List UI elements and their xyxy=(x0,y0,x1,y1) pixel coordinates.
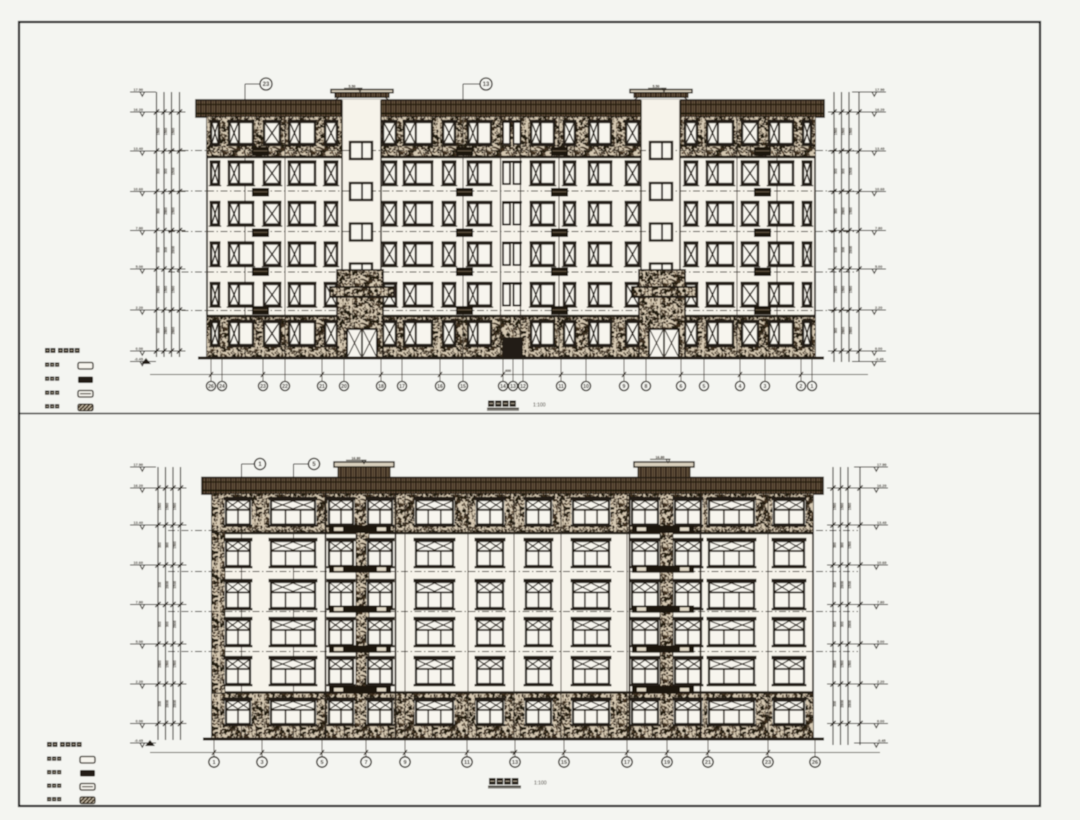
svg-text:300: 300 xyxy=(834,168,838,174)
svg-text:10: 10 xyxy=(583,384,589,390)
svg-text:1500: 1500 xyxy=(173,660,177,668)
svg-text:1500: 1500 xyxy=(849,286,853,294)
svg-text:0.00: 0.00 xyxy=(136,719,143,723)
svg-text:0.00: 0.00 xyxy=(136,347,143,351)
svg-text:-0.45: -0.45 xyxy=(134,739,143,743)
svg-text:300: 300 xyxy=(834,328,838,334)
svg-text:1500: 1500 xyxy=(848,503,852,511)
svg-text:12: 12 xyxy=(520,384,526,390)
svg-text:11: 11 xyxy=(558,384,564,390)
svg-text:300: 300 xyxy=(164,247,168,253)
svg-text:-0.45: -0.45 xyxy=(875,357,884,361)
svg-text:20: 20 xyxy=(341,384,347,390)
svg-text:1500: 1500 xyxy=(834,128,838,136)
svg-text:17.90: 17.90 xyxy=(875,88,885,92)
svg-text:22: 22 xyxy=(282,384,288,390)
svg-text:2800: 2800 xyxy=(841,581,845,589)
svg-text:300: 300 xyxy=(834,208,838,214)
svg-text:0.00: 0.00 xyxy=(877,719,884,723)
svg-text:400: 400 xyxy=(510,751,516,755)
svg-text:300: 300 xyxy=(158,701,162,707)
svg-text:2800: 2800 xyxy=(164,327,168,335)
svg-text:8: 8 xyxy=(645,384,648,390)
svg-text:300: 300 xyxy=(157,208,161,214)
svg-text:300: 300 xyxy=(833,582,837,588)
svg-text:6: 6 xyxy=(680,384,683,390)
svg-text:400: 400 xyxy=(505,369,511,373)
svg-text:2800: 2800 xyxy=(848,700,852,708)
svg-text:1500: 1500 xyxy=(172,167,176,175)
svg-text:17.90: 17.90 xyxy=(133,88,143,92)
svg-text:5.00: 5.00 xyxy=(875,265,882,269)
svg-text:15: 15 xyxy=(561,760,567,766)
svg-text:26: 26 xyxy=(812,760,818,766)
svg-text:2800: 2800 xyxy=(157,286,161,294)
svg-text:2800: 2800 xyxy=(173,620,177,628)
svg-text:7.80: 7.80 xyxy=(136,226,143,230)
svg-text:300: 300 xyxy=(841,542,845,548)
svg-text:1500: 1500 xyxy=(172,207,176,215)
svg-text:900: 900 xyxy=(157,247,161,253)
svg-text:1500: 1500 xyxy=(849,167,853,175)
svg-text:13.40: 13.40 xyxy=(877,521,887,525)
svg-text:26: 26 xyxy=(208,384,214,390)
svg-text:1500: 1500 xyxy=(173,581,177,589)
svg-text:2: 2 xyxy=(800,384,803,390)
svg-text:1500: 1500 xyxy=(164,128,168,136)
svg-text:10.60: 10.60 xyxy=(133,187,143,191)
svg-text:5.00: 5.00 xyxy=(877,640,884,644)
svg-text:7.80: 7.80 xyxy=(877,600,884,604)
svg-text:10.60: 10.60 xyxy=(875,187,885,191)
svg-text:1500: 1500 xyxy=(164,286,168,294)
svg-text:17: 17 xyxy=(624,760,630,766)
svg-text:7.80: 7.80 xyxy=(875,226,882,230)
svg-text:16.20: 16.20 xyxy=(133,484,143,488)
svg-text:1500: 1500 xyxy=(158,503,162,511)
svg-text:9: 9 xyxy=(403,760,406,766)
svg-text:2.20: 2.20 xyxy=(875,306,882,310)
svg-text:13: 13 xyxy=(483,82,490,88)
svg-text:2800: 2800 xyxy=(833,660,837,668)
svg-text:300: 300 xyxy=(842,168,846,174)
svg-text:300: 300 xyxy=(833,542,837,548)
svg-text:5: 5 xyxy=(703,384,706,390)
svg-text:1500: 1500 xyxy=(848,541,852,549)
svg-text:5: 5 xyxy=(320,760,323,766)
svg-text:300: 300 xyxy=(833,701,837,707)
svg-text:2800: 2800 xyxy=(158,660,162,668)
svg-text:10.60: 10.60 xyxy=(877,561,887,565)
svg-text:1500: 1500 xyxy=(841,660,845,668)
svg-text:21: 21 xyxy=(705,760,711,766)
svg-text:16: 16 xyxy=(437,384,443,390)
svg-text:1:100: 1:100 xyxy=(534,781,547,787)
svg-text:-0.45: -0.45 xyxy=(877,739,886,743)
svg-text:17.90: 17.90 xyxy=(133,463,143,467)
svg-text:17: 17 xyxy=(399,384,405,390)
svg-text:1: 1 xyxy=(212,760,215,766)
svg-text:10.60: 10.60 xyxy=(133,561,143,565)
svg-text:2800: 2800 xyxy=(848,620,852,628)
svg-text:2800: 2800 xyxy=(849,246,853,254)
svg-text:900: 900 xyxy=(834,247,838,253)
svg-text:13: 13 xyxy=(510,384,516,390)
svg-text:1500: 1500 xyxy=(173,541,177,549)
svg-text:19: 19 xyxy=(664,760,670,766)
svg-text:300: 300 xyxy=(842,247,846,253)
svg-text:21: 21 xyxy=(319,384,325,390)
svg-text:300: 300 xyxy=(158,582,162,588)
svg-text:2.20: 2.20 xyxy=(136,680,143,684)
svg-text:11: 11 xyxy=(464,760,470,766)
svg-text:2800: 2800 xyxy=(834,286,838,294)
svg-text:1500: 1500 xyxy=(833,503,837,511)
svg-text:13.40: 13.40 xyxy=(875,147,885,151)
svg-text:300: 300 xyxy=(841,621,845,627)
svg-text:2.20: 2.20 xyxy=(877,680,884,684)
svg-text:23: 23 xyxy=(263,82,270,88)
svg-text:300: 300 xyxy=(158,542,162,548)
svg-text:7.80: 7.80 xyxy=(136,600,143,604)
svg-text:3: 3 xyxy=(260,760,263,766)
svg-text:2800: 2800 xyxy=(172,327,176,335)
svg-text:1500: 1500 xyxy=(842,128,846,136)
svg-text:1500: 1500 xyxy=(172,128,176,136)
svg-text:9: 9 xyxy=(623,384,626,390)
svg-text:1500: 1500 xyxy=(841,503,845,511)
svg-text:1500: 1500 xyxy=(173,503,177,511)
svg-text:5.00: 5.00 xyxy=(136,640,143,644)
svg-text:300: 300 xyxy=(166,542,170,548)
svg-text:2800: 2800 xyxy=(164,207,168,215)
svg-text:4: 4 xyxy=(739,384,742,390)
svg-text:24: 24 xyxy=(219,384,225,390)
svg-text:1: 1 xyxy=(811,384,814,390)
svg-text:2800: 2800 xyxy=(166,700,170,708)
svg-text:2800: 2800 xyxy=(849,327,853,335)
svg-text:16.20: 16.20 xyxy=(875,108,885,112)
svg-text:1500: 1500 xyxy=(157,128,161,136)
svg-text:1500: 1500 xyxy=(849,128,853,136)
svg-text:1500: 1500 xyxy=(166,660,170,668)
svg-text:900: 900 xyxy=(158,621,162,627)
svg-text:13.40: 13.40 xyxy=(133,147,143,151)
svg-text:1500: 1500 xyxy=(166,503,170,511)
svg-text:900: 900 xyxy=(833,621,837,627)
svg-text:14: 14 xyxy=(500,384,506,390)
svg-text:1500: 1500 xyxy=(172,286,176,294)
svg-text:1:100: 1:100 xyxy=(533,403,546,409)
svg-text:7: 7 xyxy=(364,760,367,766)
svg-text:15: 15 xyxy=(460,384,466,390)
svg-text:3: 3 xyxy=(764,384,767,390)
svg-text:5.00: 5.00 xyxy=(136,265,143,269)
svg-text:16.20: 16.20 xyxy=(877,484,887,488)
svg-text:16.20: 16.20 xyxy=(133,108,143,112)
svg-text:2800: 2800 xyxy=(841,700,845,708)
svg-text:300: 300 xyxy=(164,168,168,174)
svg-text:2800: 2800 xyxy=(173,700,177,708)
svg-text:300: 300 xyxy=(157,168,161,174)
svg-text:1500: 1500 xyxy=(849,207,853,215)
svg-text:23: 23 xyxy=(765,760,771,766)
svg-text:2800: 2800 xyxy=(842,207,846,215)
svg-text:1500: 1500 xyxy=(848,581,852,589)
svg-text:2800: 2800 xyxy=(172,246,176,254)
svg-text:300: 300 xyxy=(157,328,161,334)
svg-text:300: 300 xyxy=(166,621,170,627)
svg-text:23: 23 xyxy=(260,384,266,390)
svg-text:13: 13 xyxy=(512,760,518,766)
svg-text:13.40: 13.40 xyxy=(133,521,143,525)
svg-text:18: 18 xyxy=(378,384,384,390)
svg-text:-0.45: -0.45 xyxy=(134,357,143,361)
svg-text:1500: 1500 xyxy=(848,660,852,668)
svg-text:0.00: 0.00 xyxy=(875,347,882,351)
svg-text:2.20: 2.20 xyxy=(136,306,143,310)
svg-text:2800: 2800 xyxy=(166,581,170,589)
svg-text:17.90: 17.90 xyxy=(877,463,887,467)
svg-text:1500: 1500 xyxy=(842,286,846,294)
svg-text:2800: 2800 xyxy=(842,327,846,335)
